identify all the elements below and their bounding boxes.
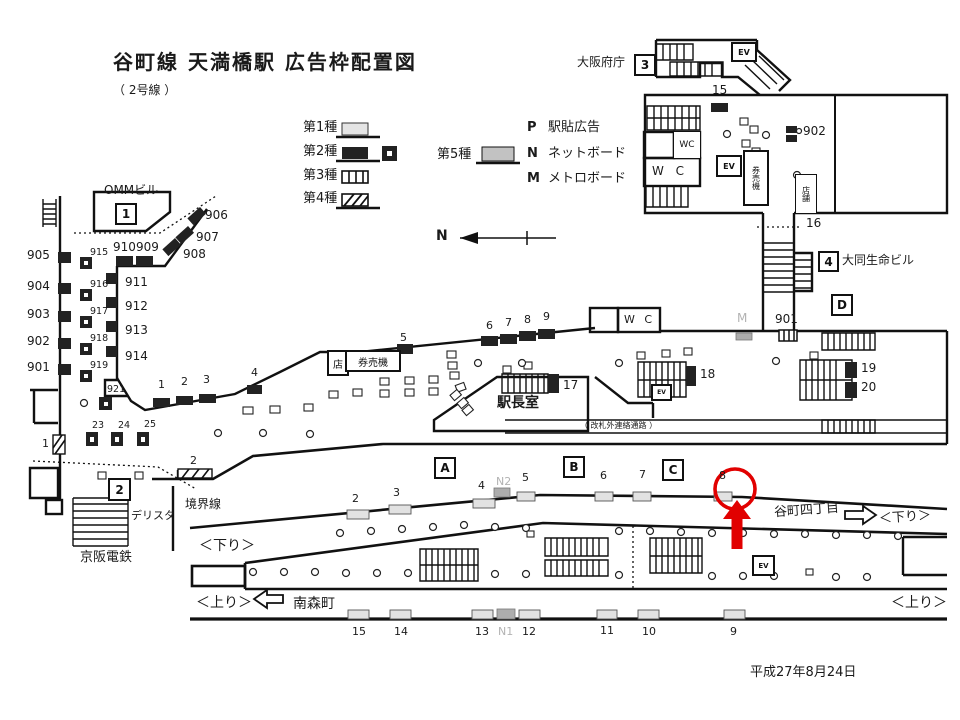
- legend-type1-label: 第1種: [303, 121, 337, 134]
- frame-910-label: 910: [113, 241, 136, 253]
- frame-p4-label: 4: [478, 480, 485, 491]
- legend-m-name: メトロボード: [548, 172, 626, 185]
- building-daido-label: 大同生命ビル: [842, 254, 914, 266]
- frame-b10-label: 10: [642, 626, 656, 637]
- frame-901-left-label: 901: [27, 361, 50, 373]
- frame-c3-label: 3: [203, 374, 210, 385]
- frame-p8-label: 8: [719, 470, 726, 481]
- corridor-label: （ 改札外連絡通路 ）: [580, 422, 657, 430]
- frame-19-label: 19: [861, 362, 876, 374]
- frame-908-label: 908: [183, 248, 206, 260]
- frame-c8-label: 8: [524, 314, 531, 325]
- ev-pref-box: EV: [731, 42, 757, 62]
- page-title: 谷町線 天満橋駅 広告枠配置図: [113, 52, 417, 72]
- frame-p6-label: 6: [600, 470, 607, 481]
- exit-1-box: 1: [115, 203, 137, 225]
- frame-c6-label: 6: [486, 320, 493, 331]
- legend-p-name: 駅貼広告: [548, 121, 600, 134]
- frame-23-label: 23: [92, 421, 104, 431]
- frame-917-label: 917: [90, 307, 108, 317]
- legend-type4-label: 第4種: [303, 192, 337, 205]
- station-ad-layout-diagram: 谷町線 天満橋駅 広告枠配置図 （ 2号線 ） 平成27年8月24日 N 第1種…: [0, 0, 960, 720]
- wc-concourse-label: W C: [624, 314, 655, 325]
- frame-p7-label: 7: [639, 469, 646, 480]
- frame-15-top-label: 15: [712, 84, 727, 96]
- up-direction-left-label: ＜上り＞: [196, 596, 252, 610]
- frame-24-label: 24: [118, 421, 130, 431]
- wc-small-label: WC: [674, 132, 700, 158]
- building-omm-label: OMMビル: [104, 184, 158, 196]
- frame-913-label: 913: [125, 324, 148, 336]
- frame-c5-label: 5: [400, 332, 407, 343]
- building-pref-label: 大阪府庁: [577, 56, 625, 68]
- frame-c9-label: 9: [543, 311, 550, 322]
- page-subtitle: （ 2号線 ）: [113, 84, 176, 96]
- frame-909-label: 909: [136, 241, 159, 253]
- zone-c-box: C: [662, 459, 684, 481]
- ticket-machines-box: 券売機: [345, 350, 401, 372]
- shop-vertical-box: 店舗: [795, 174, 817, 214]
- exit-3-box: 3: [634, 54, 656, 76]
- frame-c2-label: 2: [181, 376, 188, 387]
- frame-2-hatch-label: 2: [190, 455, 197, 466]
- frame-918-label: 918: [90, 334, 108, 344]
- arrow-left-icon: [254, 590, 283, 608]
- ad-frames-striped: [779, 330, 797, 341]
- wc-wide-label: W C: [652, 165, 688, 177]
- legend-p-code: P: [527, 121, 537, 134]
- frame-16-label: 16: [806, 217, 821, 229]
- frame-914-label: 914: [125, 350, 148, 362]
- ev-easthall-box: EV: [716, 155, 742, 177]
- frame-c7-label: 7: [505, 317, 512, 328]
- frame-20-label: 20: [861, 381, 876, 393]
- frame-911-label: 911: [125, 276, 148, 288]
- frame-b15-label: 15: [352, 626, 366, 637]
- minamimorimachi-label: 南森町: [293, 597, 335, 611]
- frame-912-label: 912: [125, 300, 148, 312]
- frame-b14-label: 14: [394, 626, 408, 637]
- down-direction-right-label: ＜下り＞: [879, 509, 932, 526]
- frame-n2-label: N2: [496, 476, 511, 487]
- ev-concourse-box: EV: [651, 384, 672, 401]
- frame-p3-label: 3: [393, 487, 400, 498]
- frame-c1-label: 1: [158, 379, 165, 390]
- frame-919-label: 919: [90, 361, 108, 371]
- down-direction-left-label: ＜下り＞: [199, 539, 255, 553]
- frame-902-left-label: 902: [27, 335, 50, 347]
- frame-b13-label: 13: [475, 626, 489, 637]
- frame-902-east-label: 902: [803, 125, 826, 137]
- frame-905-label: 905: [27, 249, 50, 261]
- compass-n-label: N: [436, 229, 448, 243]
- legend-type5-label: 第5種: [437, 148, 471, 161]
- building-keihan-label: 京阪電鉄: [80, 551, 132, 564]
- frame-b11-label: 11: [600, 625, 614, 636]
- frame-921-label: 921: [107, 385, 125, 395]
- frame-1-hatch-label: 1: [42, 438, 49, 449]
- frame-901-east-label: 901: [775, 313, 798, 325]
- boundary-line-label: 境界線: [185, 498, 221, 510]
- frame-p5-label: 5: [522, 472, 529, 483]
- building-delista-label: デリスタ: [131, 510, 175, 521]
- frame-b9-label: 9: [730, 626, 737, 637]
- legend-n-name: ネットボード: [548, 147, 626, 160]
- frame-c4-label: 4: [251, 367, 258, 378]
- ev-platform-box: EV: [752, 555, 775, 576]
- legend-n-code: N: [527, 147, 538, 160]
- legend-type2-label: 第2種: [303, 145, 337, 158]
- frame-18-label: 18: [700, 368, 715, 380]
- stationmaster-office-label: 駅長室: [497, 396, 539, 410]
- arrow-right-icon: [845, 506, 876, 524]
- frame-904-label: 904: [27, 280, 50, 292]
- frame-m-label: M: [737, 312, 747, 324]
- frame-906-label: 906: [205, 209, 228, 221]
- exit-2-box: 2: [108, 478, 131, 501]
- up-direction-right-label: ＜上り＞: [891, 596, 947, 610]
- legend-icons: [336, 123, 520, 208]
- zone-b-box: B: [563, 456, 585, 478]
- frame-25-label: 25: [144, 420, 156, 430]
- zone-a-box: A: [434, 457, 456, 479]
- frame-b12-label: 12: [522, 626, 536, 637]
- exit-4-box: 4: [818, 251, 839, 272]
- frame-915-label: 915: [90, 248, 108, 258]
- frame-916-label: 916: [90, 280, 108, 290]
- date-label: 平成27年8月24日: [750, 666, 856, 679]
- north-arrow: [460, 231, 556, 245]
- legend-type3-label: 第3種: [303, 169, 337, 182]
- ad-frames-hatched: [53, 435, 212, 478]
- legend-m-code: M: [527, 172, 540, 185]
- frame-p2-label: 2: [352, 493, 359, 504]
- ticket-machines-vertical-box: 券売機: [743, 150, 769, 206]
- frame-n1-label: N1: [498, 626, 513, 637]
- frame-903-label: 903: [27, 308, 50, 320]
- frame-907-label: 907: [196, 231, 219, 243]
- zone-d-box: D: [831, 294, 853, 316]
- frame-17-label: 17: [563, 379, 578, 391]
